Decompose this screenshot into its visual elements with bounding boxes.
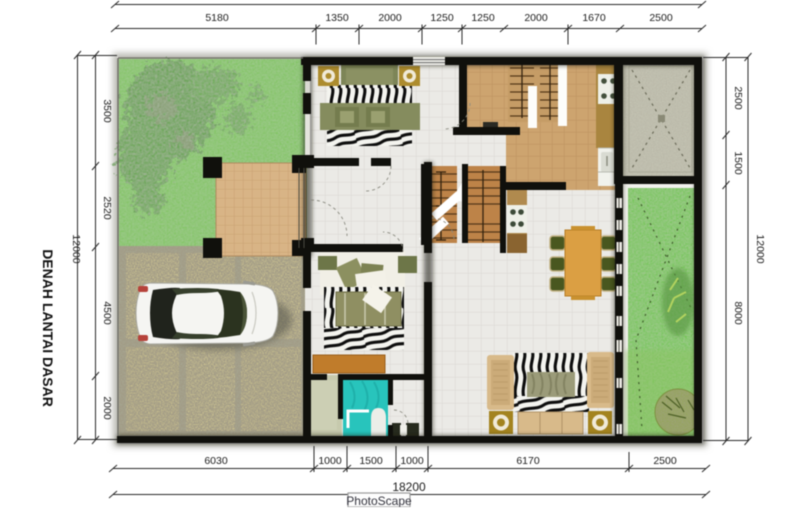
svg-text:DENAH LANTAI DASAR: DENAH LANTAI DASAR bbox=[40, 249, 56, 407]
svg-text:5180: 5180 bbox=[205, 12, 229, 24]
svg-text:2500: 2500 bbox=[653, 455, 677, 467]
svg-text:1500: 1500 bbox=[359, 455, 383, 467]
svg-text:1250: 1250 bbox=[471, 12, 495, 24]
svg-text:1000: 1000 bbox=[318, 455, 342, 467]
svg-text:1670: 1670 bbox=[582, 12, 606, 24]
svg-text:2000: 2000 bbox=[101, 396, 113, 420]
svg-text:2000: 2000 bbox=[524, 12, 548, 24]
svg-text:6170: 6170 bbox=[516, 455, 540, 467]
svg-text:8000: 8000 bbox=[732, 301, 744, 325]
svg-text:1250: 1250 bbox=[430, 12, 454, 24]
svg-text:PhotoScape: PhotoScape bbox=[346, 494, 412, 507]
svg-text:12000: 12000 bbox=[754, 234, 766, 263]
svg-text:1000: 1000 bbox=[400, 455, 424, 467]
svg-text:2000: 2000 bbox=[378, 12, 402, 24]
svg-text:1500: 1500 bbox=[732, 151, 744, 175]
svg-text:18200: 18200 bbox=[392, 480, 426, 494]
svg-text:2500: 2500 bbox=[732, 86, 744, 110]
svg-text:4500: 4500 bbox=[101, 301, 113, 325]
svg-text:1350: 1350 bbox=[325, 12, 349, 24]
svg-text:12000: 12000 bbox=[70, 234, 82, 263]
svg-text:6030: 6030 bbox=[204, 455, 228, 467]
svg-text:2500: 2500 bbox=[649, 12, 673, 24]
svg-text:2520: 2520 bbox=[101, 196, 113, 220]
svg-text:3500: 3500 bbox=[101, 99, 113, 123]
